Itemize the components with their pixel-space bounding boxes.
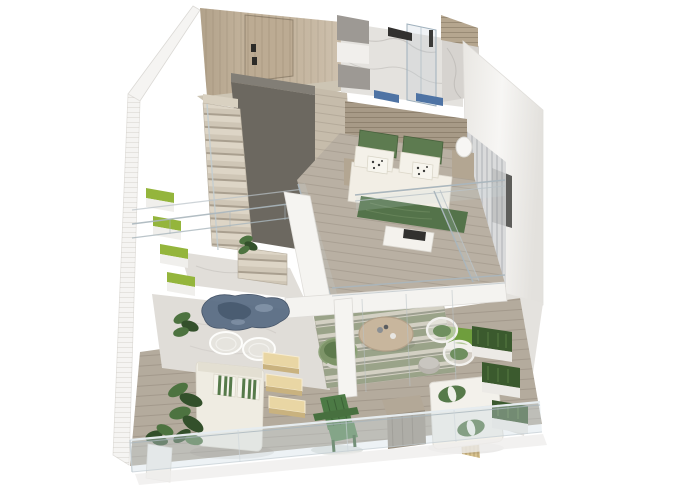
table-item-cup (384, 325, 389, 330)
daybed-pillow-striped-2 (237, 377, 260, 400)
lit-steps (263, 352, 305, 418)
hedge-planter-2 (482, 362, 520, 398)
dining-table-top (359, 317, 413, 351)
floral-cushion-right (412, 162, 433, 180)
wire-chair-green-2 (444, 341, 474, 365)
table-lamp (456, 137, 472, 157)
blue-rug-pattern-light-1 (255, 304, 273, 312)
door-handle-upper (251, 44, 256, 52)
floorplan-render-canvas (0, 0, 680, 486)
hedge-planter-1 (472, 326, 512, 362)
gray-pouf (418, 357, 440, 374)
wire-chair-lounge-1 (210, 332, 242, 354)
floorplan-3d-render (0, 0, 680, 486)
table-item-bowl (377, 327, 383, 333)
table-item-plate (390, 333, 396, 339)
blue-rug-pattern-light-2 (231, 319, 245, 325)
floral-cushion-left (367, 156, 388, 174)
daybed-pillow-striped-1 (213, 374, 236, 397)
door-handle-lower (252, 57, 257, 65)
shower-riser-bar (429, 30, 433, 47)
wire-chair-green-1 (427, 318, 457, 342)
